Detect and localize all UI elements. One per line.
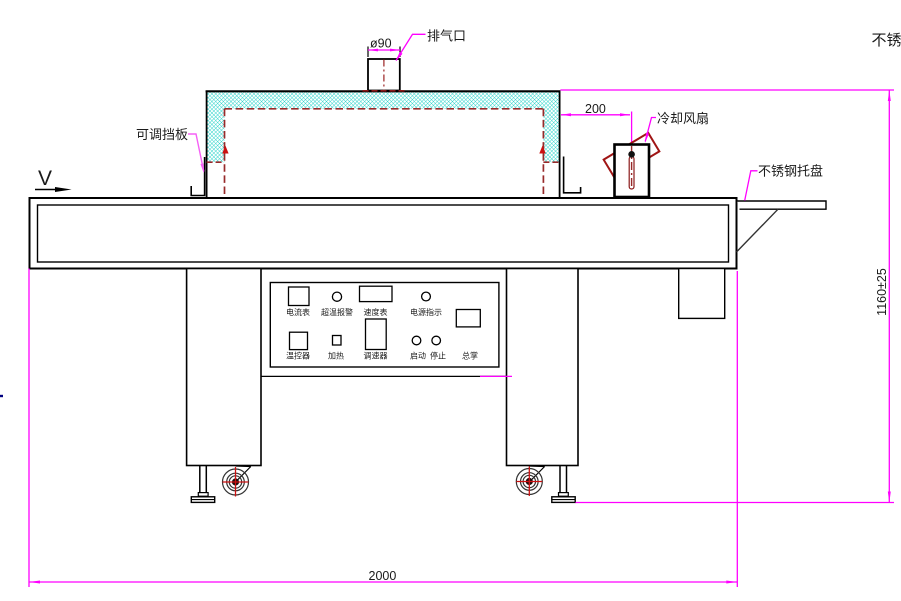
svg-text:200: 200 [585,102,606,116]
svg-text:2000: 2000 [369,569,397,583]
svg-text:不锈钢托盘: 不锈钢托盘 [758,164,823,179]
svg-text:不锈钢: 不锈钢 [872,32,901,49]
svg-text:冷却风扇: 冷却风扇 [657,111,709,126]
svg-text:调速器: 调速器 [364,352,388,361]
svg-text:电流表: 电流表 [286,307,310,317]
svg-text:停止: 停止 [430,351,446,361]
svg-text:可调挡板: 可调挡板 [136,127,188,142]
svg-text:总掌: 总掌 [462,351,478,361]
svg-text:加热: 加热 [328,351,344,361]
svg-text:启动: 启动 [410,351,426,361]
svg-text:ø90: ø90 [370,37,392,51]
svg-text:超温报警: 超温报警 [321,307,353,317]
svg-text:排气口: 排气口 [427,29,466,44]
svg-text:V: V [38,167,52,190]
svg-text:温控器: 温控器 [286,351,310,361]
svg-text:1160±25: 1160±25 [875,268,889,316]
svg-text:速度表: 速度表 [364,307,388,317]
svg-text:电源指示: 电源指示 [410,307,442,317]
